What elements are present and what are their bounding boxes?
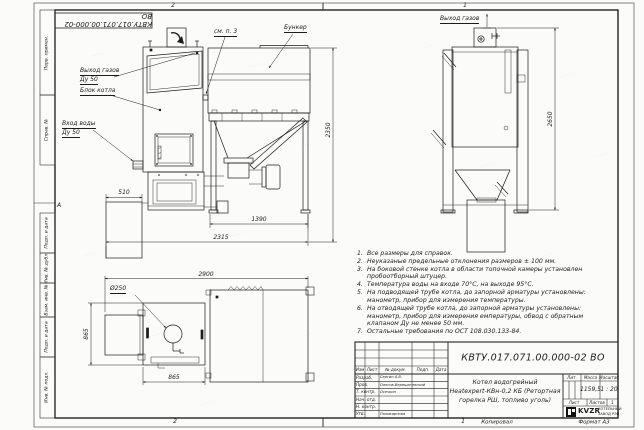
margin-label-perv-primen: Перв. примен. (45, 35, 50, 70)
label-gas-outlet: Выход газов (80, 68, 119, 76)
note-item: 7.Остальные требования по ОСТ 108.030.13… (357, 328, 598, 336)
kvzr-logo-icon (566, 407, 576, 417)
note-item: 4.Температура воды на входе 70°С, на вых… (357, 281, 598, 289)
zone-number: 2 (171, 3, 175, 9)
row-role: Пров. (356, 383, 368, 387)
drawing-linework (0, 0, 644, 430)
lit-label: Лит. (567, 375, 577, 379)
row-role: Разраб. (356, 376, 372, 380)
sheet-label: Лист (569, 400, 580, 404)
dim-865-v: 865 (84, 328, 90, 339)
zone-number: 2 (173, 419, 177, 425)
note-item: 1.Все размеры для справок. (357, 250, 598, 258)
side-view (431, 28, 528, 252)
margin-label-vzam-inv: Взам. инв. № (45, 284, 50, 315)
dim-2650: 2650 (548, 111, 554, 126)
front-view (106, 28, 310, 258)
sheet-frame (34, 3, 634, 427)
drawing-sheet: ······· ······· ······· ······· ······· … (0, 0, 644, 430)
col-list: Лист (367, 368, 378, 372)
col-izm: Изм (356, 368, 365, 372)
note-item: 5.На подводящей трубе котла, до запорной… (357, 289, 598, 305)
note-item: 2.Неуказаные предельные отклонения разме… (357, 258, 598, 266)
zone-letter: А (57, 203, 61, 209)
row-name: Поликарпова (380, 413, 405, 417)
product-name-line1: Котел водогрейный (473, 380, 538, 386)
label-boiler-block: Блок котла (80, 88, 115, 96)
zone-number: 1 (461, 419, 465, 425)
col-doc: № докум. (385, 368, 406, 372)
label-gas-outlet-dn: Ду 50 (80, 77, 98, 85)
row-name: Осечкин (380, 391, 396, 395)
row-name: Олесов-Верещагинский (380, 384, 425, 388)
product-name-line3: горелка РШ, топливо уголь) (459, 398, 551, 404)
plan-view (105, 287, 314, 383)
mass-value: 1159,5 (580, 387, 601, 393)
label-water-inlet-dn: Ду 50 (62, 130, 80, 138)
label-diameter-250: Ø250 (110, 286, 126, 294)
margin-label-sprav-no: Справ. № (45, 119, 50, 141)
mass-label: Масса (584, 375, 597, 379)
margin-label-podp-data-1: Подп. и дата (45, 217, 50, 248)
scale-label: Масштаб (599, 375, 619, 379)
label-hopper: Бункер (284, 25, 307, 33)
row-role: Утв. (356, 412, 365, 416)
scale-value: 1 : 20 (600, 387, 617, 393)
dim-865-h: 865 (168, 375, 179, 381)
product-name-line2: Heatexpert-КВн-0,2 КБ (Ретортная (450, 389, 561, 395)
dim-1390: 1390 (251, 217, 266, 223)
row-name: Сергин А.В. (380, 376, 402, 380)
label-see-note: см. п. 3 (214, 29, 237, 37)
label-water-inlet: Вход воды (62, 121, 96, 129)
format-label: Формат А3 (578, 420, 609, 426)
margin-label-inv-dubl: Инв. № дубл. (45, 252, 50, 283)
dim-510: 510 (118, 190, 129, 196)
sheets-value: 1 (611, 400, 614, 404)
dim-2900: 2900 (198, 272, 213, 278)
row-role: Нач. отд. (356, 398, 376, 402)
margin-cells (34, 3, 323, 427)
row-role: Н. контр. (356, 405, 376, 409)
margin-label-podp-data-2: Подп. и дата (45, 321, 50, 352)
note-item: 6.На отводящей трубе котла, до запорной … (357, 305, 598, 328)
kvzr-logo-text: KVZR (578, 408, 600, 415)
filing-stamp: КВТУ.017.071.00.000-02 ВО (55, 13, 152, 28)
dim-2315: 2315 (213, 235, 228, 241)
margin-label-inv-podl: Инв. № подл. (45, 371, 50, 403)
note-item: 3.На боковой стенке котла в области топо… (357, 266, 598, 282)
copied-label: Копировал (481, 420, 512, 426)
label-gas-outlet-side: Выход газов (440, 16, 479, 24)
col-data: Дата (436, 368, 447, 372)
zone-number: 1 (463, 3, 467, 9)
dim-2350: 2350 (326, 122, 332, 137)
sheets-label: Листов (589, 400, 605, 404)
technical-notes: 1.Все размеры для справок. 2.Неуказаные … (357, 250, 598, 336)
col-podp: Подп. (417, 368, 430, 372)
row-role: Т. контр. (356, 390, 375, 394)
org-name-line2: ЗАВОД РЭП (598, 413, 619, 417)
title-doc-number: КВТУ.017.071.00.000-02 ВО (461, 353, 604, 363)
